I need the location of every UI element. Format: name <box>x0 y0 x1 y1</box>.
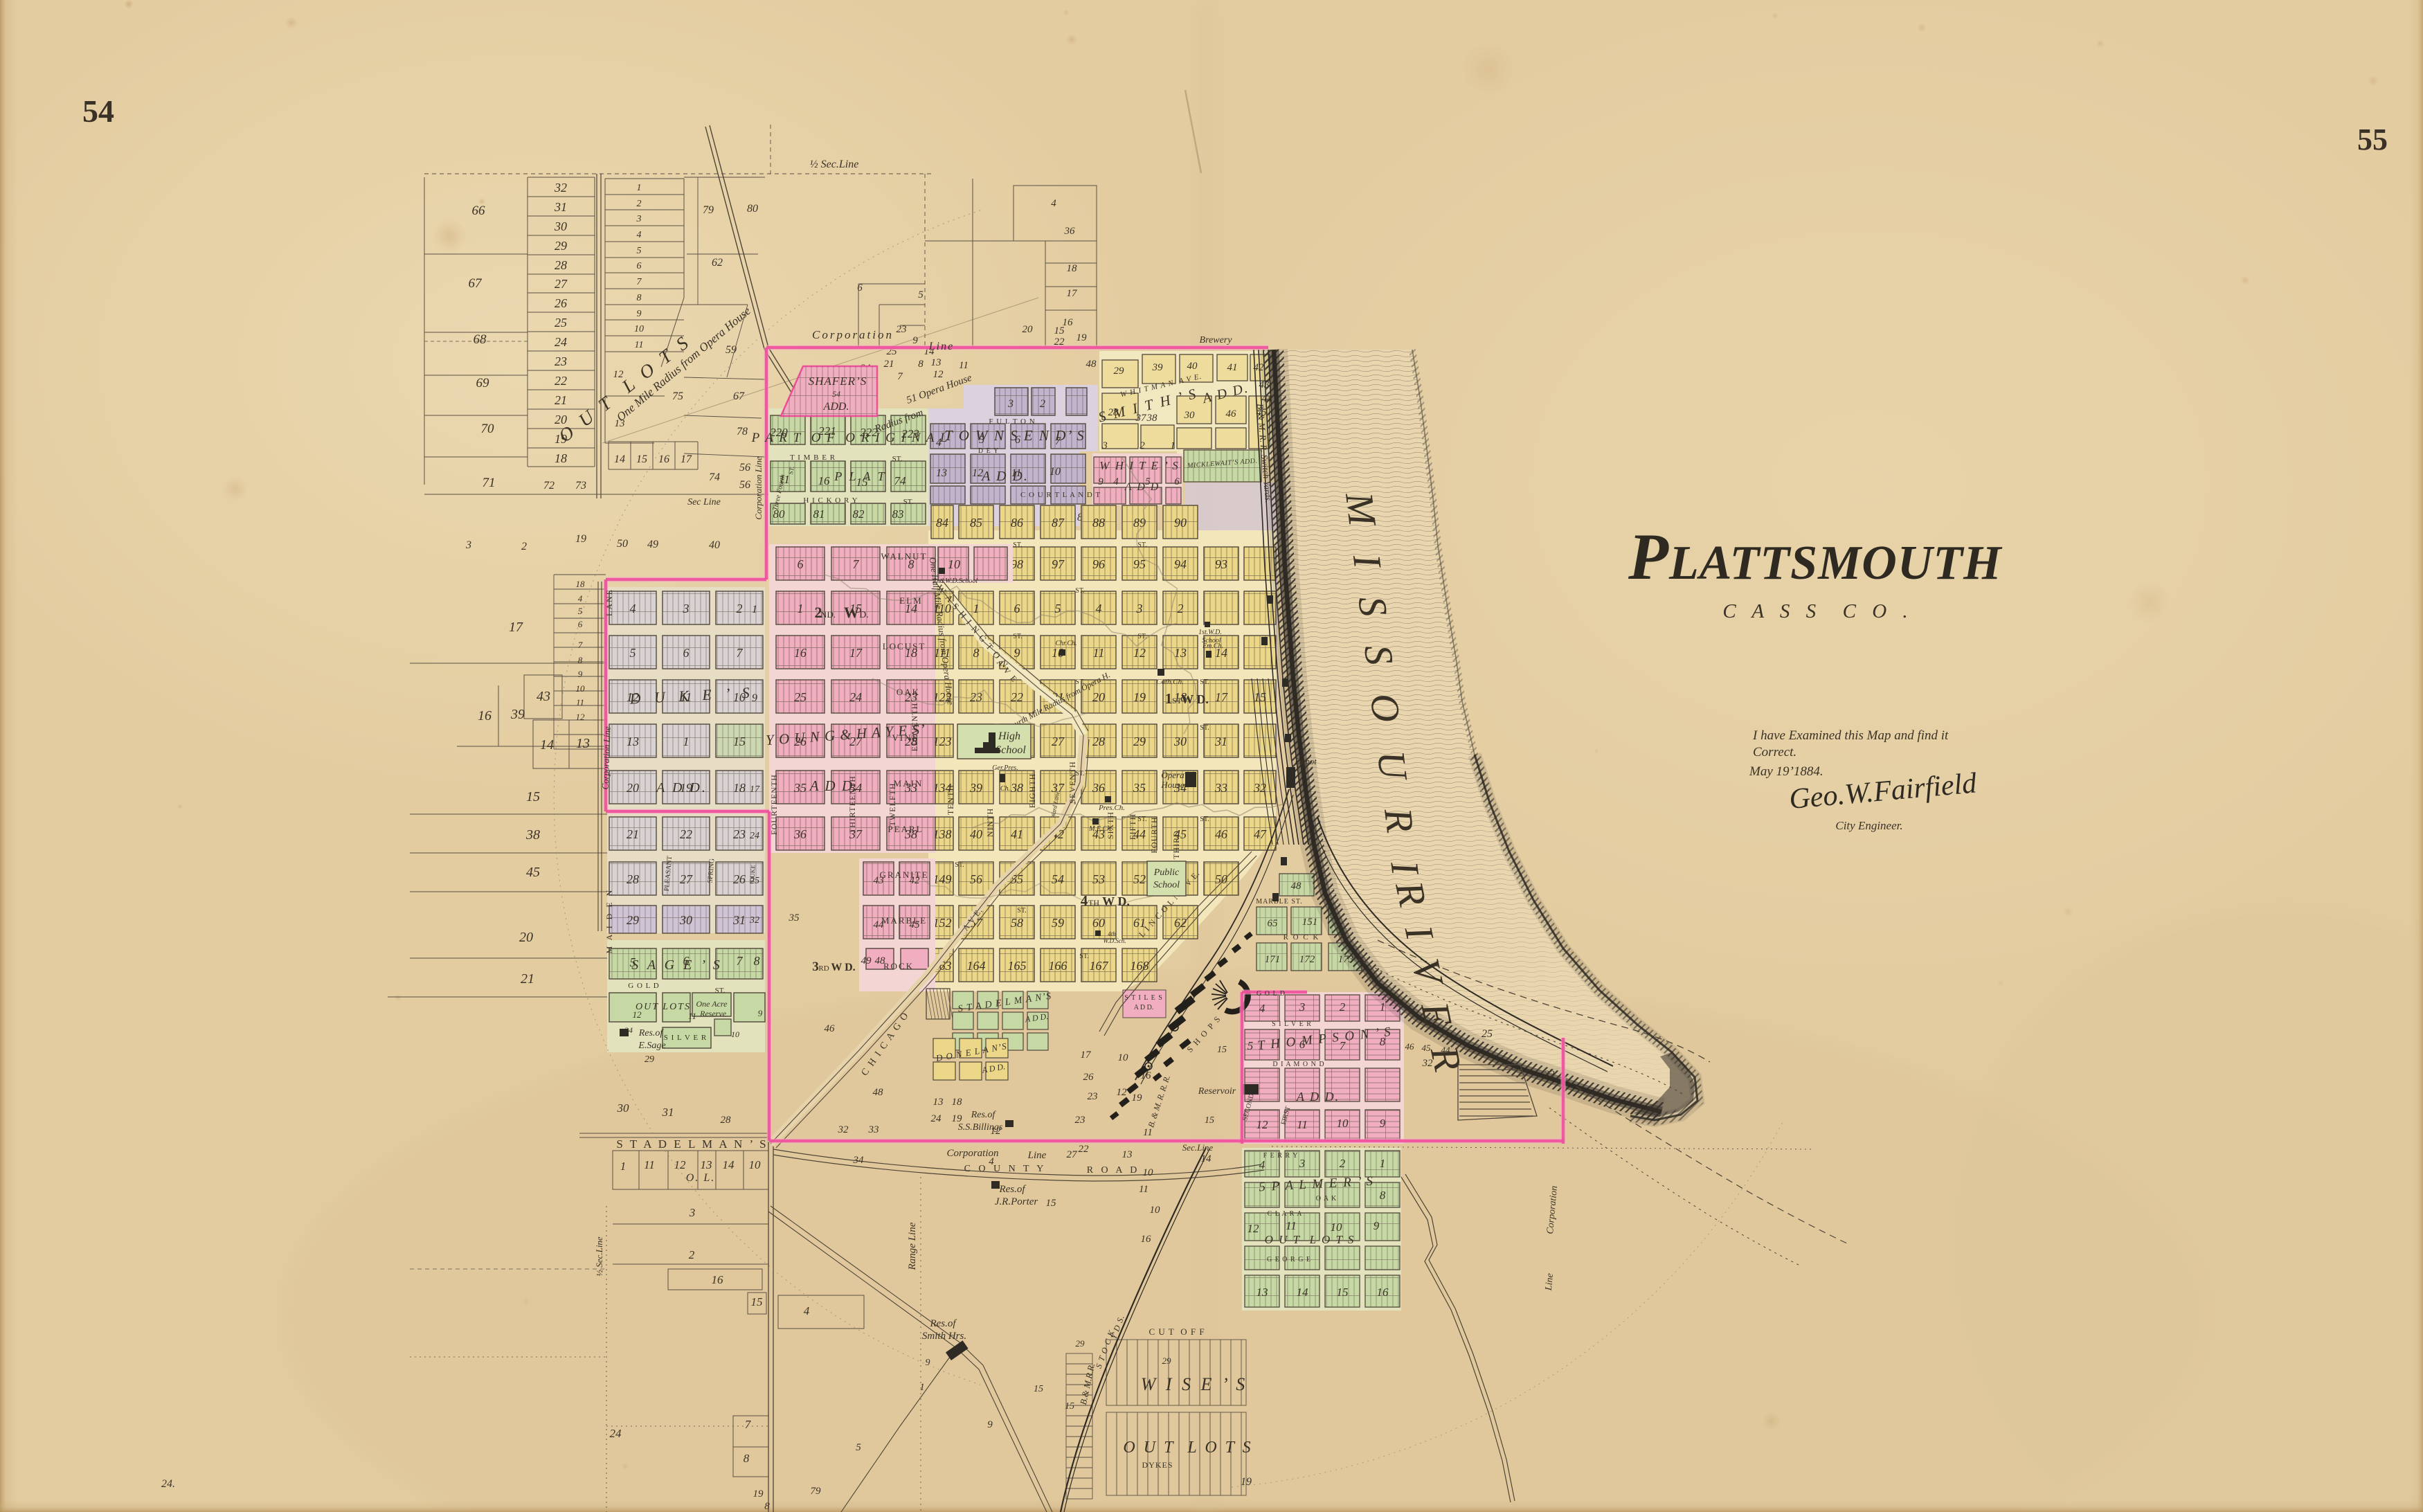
svg-text:24.: 24. <box>161 1478 175 1490</box>
svg-text:50: 50 <box>1215 872 1227 886</box>
svg-text:2: 2 <box>1040 398 1045 410</box>
svg-text:79: 79 <box>703 204 714 216</box>
svg-text:TH: TH <box>1088 898 1099 908</box>
svg-text:23: 23 <box>1088 1091 1098 1102</box>
svg-text:M.E.Ch.: M.E.Ch. <box>1088 825 1113 833</box>
svg-text:10: 10 <box>749 1158 762 1171</box>
svg-text:House: House <box>1160 780 1184 790</box>
svg-text:Line: Line <box>1027 1150 1047 1161</box>
svg-text:18: 18 <box>555 451 567 465</box>
svg-text:93: 93 <box>1215 557 1227 571</box>
svg-text:35: 35 <box>789 912 800 924</box>
svg-text:12: 12 <box>633 1009 642 1020</box>
svg-text:Res.of: Res.of <box>929 1318 957 1329</box>
svg-text:21: 21 <box>884 359 894 370</box>
svg-text:Pres.Ch.: Pres.Ch. <box>1098 804 1125 812</box>
svg-text:6: 6 <box>683 646 690 660</box>
svg-text:2: 2 <box>1178 602 1184 615</box>
svg-text:Chr.Ch.: Chr.Ch. <box>1055 640 1077 647</box>
svg-text:9: 9 <box>987 1419 993 1430</box>
svg-text:14: 14 <box>540 737 554 753</box>
svg-text:65: 65 <box>1268 918 1279 929</box>
svg-text:86: 86 <box>1011 516 1023 530</box>
svg-text:20: 20 <box>1092 690 1105 704</box>
svg-text:PEARL: PEARL <box>888 824 923 834</box>
svg-text:ST.: ST. <box>1137 633 1146 640</box>
svg-text:2nd.W.D.School: 2nd.W.D.School <box>933 577 978 585</box>
svg-text:11: 11 <box>688 1011 696 1021</box>
svg-text:6: 6 <box>857 282 863 294</box>
svg-text:Cath.Ch.: Cath.Ch. <box>1156 678 1184 686</box>
svg-text:9: 9 <box>1014 646 1020 660</box>
svg-text:15: 15 <box>1034 1384 1043 1394</box>
svg-text:10: 10 <box>948 557 960 571</box>
svg-text:49: 49 <box>647 539 658 550</box>
svg-text:13: 13 <box>1122 1149 1133 1160</box>
svg-text:1: 1 <box>1380 1157 1386 1170</box>
svg-text:5: 5 <box>856 1442 861 1453</box>
svg-text:MARBLE ST.: MARBLE ST. <box>1256 898 1303 906</box>
svg-text:172: 172 <box>1299 954 1315 965</box>
svg-text:3: 3 <box>465 539 471 551</box>
svg-text:OUT LOTS: OUT LOTS <box>636 1002 691 1012</box>
svg-text:ND.: ND. <box>820 609 836 620</box>
svg-text:Range Line: Range Line <box>907 1222 918 1270</box>
svg-text:39: 39 <box>510 707 525 722</box>
svg-text:48: 48 <box>873 1087 884 1098</box>
svg-text:39: 39 <box>969 781 982 795</box>
svg-text:29: 29 <box>555 239 567 253</box>
svg-text:41: 41 <box>1227 362 1238 373</box>
svg-text:1: 1 <box>683 735 690 748</box>
svg-text:P A R T O F O R I G I N A L: P A R T O F O R I G I N A L <box>751 431 949 445</box>
svg-text:30: 30 <box>617 1101 630 1115</box>
svg-text:City Engineer.: City Engineer. <box>1835 819 1902 832</box>
svg-text:4: 4 <box>1096 602 1102 615</box>
svg-text:R O A D: R O A D <box>1087 1165 1140 1176</box>
svg-text:19: 19 <box>575 533 586 545</box>
svg-text:24: 24 <box>750 831 759 841</box>
svg-text:3: 3 <box>683 602 690 615</box>
svg-text:15: 15 <box>1217 1045 1227 1055</box>
svg-text:14: 14 <box>614 453 625 465</box>
svg-text:1: 1 <box>1165 690 1173 707</box>
svg-text:6: 6 <box>798 557 804 571</box>
svg-text:6: 6 <box>1174 476 1180 487</box>
svg-text:11: 11 <box>1143 1127 1153 1138</box>
svg-text:F U L T O N: F U L T O N <box>989 417 1035 426</box>
svg-text:70: 70 <box>481 422 495 436</box>
svg-text:10: 10 <box>1143 1167 1154 1178</box>
svg-text:41: 41 <box>1011 827 1023 841</box>
svg-text:164: 164 <box>967 959 986 973</box>
svg-text:3: 3 <box>1299 1000 1306 1014</box>
svg-text:2: 2 <box>689 1248 695 1261</box>
svg-text:12: 12 <box>933 369 944 380</box>
svg-text:One Acre: One Acre <box>696 999 728 1009</box>
svg-text:FIFTH: FIFTH <box>1128 813 1137 840</box>
svg-text:27: 27 <box>1067 1149 1079 1160</box>
svg-text:6: 6 <box>1014 602 1020 615</box>
svg-text:29: 29 <box>1133 735 1146 748</box>
svg-text:11: 11 <box>1139 1184 1149 1195</box>
svg-text:58: 58 <box>1011 916 1023 930</box>
svg-text:13: 13 <box>1256 1286 1268 1299</box>
svg-text:T O W N S E N D’ S: T O W N S E N D’ S <box>944 427 1086 444</box>
svg-text:A D D.: A D D. <box>655 780 708 795</box>
svg-text:15: 15 <box>733 735 746 748</box>
svg-text:56: 56 <box>739 462 750 474</box>
svg-text:96: 96 <box>1092 557 1105 571</box>
svg-text:7: 7 <box>737 954 744 968</box>
svg-text:13: 13 <box>931 357 942 368</box>
svg-text:S T A D E L M A N ’ S: S T A D E L M A N ’ S <box>616 1137 768 1151</box>
svg-text:152: 152 <box>933 916 952 930</box>
svg-text:29: 29 <box>1114 366 1125 377</box>
svg-text:Res.of: Res.of <box>638 1028 665 1038</box>
svg-text:11: 11 <box>644 1158 655 1171</box>
svg-text:30: 30 <box>1184 410 1196 421</box>
svg-text:30: 30 <box>1173 735 1187 748</box>
svg-text:80: 80 <box>747 203 758 215</box>
svg-text:16: 16 <box>794 646 807 660</box>
svg-text:29: 29 <box>1076 1338 1086 1349</box>
svg-text:69: 69 <box>476 376 490 390</box>
svg-text:O U T L O T S: O U T L O T S <box>1123 1439 1252 1457</box>
svg-text:17: 17 <box>1081 1050 1092 1061</box>
svg-text:MAIN: MAIN <box>894 778 924 789</box>
svg-text:8: 8 <box>637 293 642 303</box>
svg-text:28: 28 <box>627 872 639 886</box>
svg-text:75: 75 <box>672 390 683 402</box>
svg-text:7: 7 <box>578 640 583 650</box>
svg-text:36: 36 <box>1064 226 1076 237</box>
svg-text:18: 18 <box>952 1097 963 1108</box>
svg-text:11: 11 <box>1286 1219 1297 1232</box>
svg-text:12: 12 <box>1133 646 1146 660</box>
svg-text:27: 27 <box>680 872 693 886</box>
svg-text:22: 22 <box>1011 690 1023 704</box>
svg-text:Opera: Opera <box>1161 770 1185 780</box>
svg-text:Corporation: Corporation <box>946 1148 998 1159</box>
svg-text:46: 46 <box>825 1023 836 1034</box>
svg-text:20: 20 <box>1023 324 1034 335</box>
svg-text:May 19’1884.: May 19’1884. <box>1749 764 1823 779</box>
svg-text:2: 2 <box>1340 1000 1346 1014</box>
svg-text:21: 21 <box>555 393 567 407</box>
svg-text:4: 4 <box>804 1304 810 1317</box>
svg-text:36: 36 <box>1092 781 1105 795</box>
svg-text:40: 40 <box>1187 361 1198 372</box>
svg-text:Public: Public <box>1153 867 1180 878</box>
svg-text:Reserve: Reserve <box>699 1009 727 1018</box>
svg-text:TENTH: TENTH <box>946 784 955 815</box>
svg-text:M A I D E N: M A I D E N <box>604 888 614 954</box>
svg-text:5: 5 <box>637 246 642 256</box>
svg-text:31: 31 <box>662 1106 674 1119</box>
svg-text:32: 32 <box>1544 1069 1556 1080</box>
svg-text:4: 4 <box>1113 476 1119 487</box>
svg-text:OAK: OAK <box>897 687 920 697</box>
svg-text:Res.of: Res.of <box>971 1110 997 1120</box>
svg-text:31: 31 <box>732 913 746 927</box>
svg-text:16: 16 <box>478 708 492 723</box>
svg-text:24: 24 <box>849 690 862 704</box>
svg-text:6: 6 <box>578 619 583 629</box>
svg-text:29: 29 <box>645 1054 654 1065</box>
svg-text:ST.: ST. <box>892 455 903 463</box>
svg-text:62: 62 <box>1174 916 1187 930</box>
svg-text:35: 35 <box>793 781 807 795</box>
svg-text:C O U N T Y: C O U N T Y <box>964 1164 1047 1174</box>
svg-text:87: 87 <box>1052 516 1065 530</box>
svg-text:I have Examined this Map and f: I have Examined this Map and find it <box>1752 728 1949 743</box>
svg-text:ST.: ST. <box>1075 770 1084 777</box>
svg-text:O. L.: O. L. <box>686 1172 715 1184</box>
svg-text:ST.: ST. <box>1137 541 1146 549</box>
svg-text:46: 46 <box>1405 1041 1415 1052</box>
svg-text:ST.: ST. <box>1200 724 1209 732</box>
svg-text:88: 88 <box>1092 516 1105 530</box>
svg-text:19: 19 <box>1241 1476 1252 1488</box>
svg-text:24: 24 <box>555 335 567 349</box>
svg-text:48: 48 <box>1291 881 1302 892</box>
svg-text:A D D.: A D D. <box>1296 1090 1340 1104</box>
svg-text:24: 24 <box>610 1427 622 1440</box>
svg-text:LOCUST: LOCUST <box>883 641 926 651</box>
svg-text:DYKES: DYKES <box>1142 1460 1173 1470</box>
svg-text:Sec Line: Sec Line <box>687 497 721 507</box>
svg-text:21: 21 <box>627 827 639 841</box>
svg-text:Smith Hrs.: Smith Hrs. <box>922 1331 966 1342</box>
svg-text:54: 54 <box>832 389 840 399</box>
svg-text:59: 59 <box>1052 916 1064 930</box>
svg-text:2: 2 <box>637 199 642 209</box>
svg-text:43: 43 <box>537 689 550 704</box>
svg-text:38: 38 <box>525 827 540 843</box>
svg-text:4: 4 <box>1259 1002 1265 1015</box>
svg-text:40: 40 <box>709 539 720 551</box>
svg-text:26: 26 <box>1083 1072 1095 1083</box>
svg-text:15: 15 <box>1054 325 1065 336</box>
svg-text:5: 5 <box>1247 1039 1254 1052</box>
svg-text:P L A T: P L A T <box>834 469 886 483</box>
svg-text:56: 56 <box>739 479 750 491</box>
svg-text:38: 38 <box>1010 781 1023 795</box>
svg-text:5: 5 <box>578 606 583 616</box>
svg-text:ST.: ST. <box>903 498 914 506</box>
svg-text:7: 7 <box>853 557 860 571</box>
svg-text:17: 17 <box>509 620 523 635</box>
svg-text:VINE: VINE <box>892 732 919 743</box>
svg-text:C O U R T L A N D T: C O U R T L A N D T <box>1020 491 1101 499</box>
svg-text:9: 9 <box>912 335 918 346</box>
svg-text:Line: Line <box>1544 1273 1556 1292</box>
svg-text:3: 3 <box>1299 1157 1306 1170</box>
svg-text:17: 17 <box>1215 690 1228 704</box>
svg-text:73: 73 <box>575 480 586 492</box>
svg-text:74: 74 <box>894 474 907 487</box>
svg-text:8: 8 <box>973 646 980 660</box>
svg-text:10: 10 <box>731 1029 739 1039</box>
svg-text:50: 50 <box>617 538 628 550</box>
svg-text:9: 9 <box>926 1358 930 1368</box>
svg-text:W: W <box>844 604 859 621</box>
svg-text:G E O R G E: G E O R G E <box>1267 1256 1311 1263</box>
svg-text:R O C K: R O C K <box>1283 933 1320 942</box>
svg-text:Brewery: Brewery <box>1200 335 1233 345</box>
svg-text:Ch.: Ch. <box>1000 785 1010 793</box>
svg-text:16: 16 <box>1377 1286 1389 1299</box>
svg-text:67: 67 <box>469 276 483 291</box>
svg-text:ST.: ST. <box>1200 678 1209 686</box>
svg-text:ST.: ST. <box>715 987 726 995</box>
svg-text:47: 47 <box>1254 827 1267 841</box>
svg-text:53: 53 <box>1092 872 1105 886</box>
svg-text:ST.: ST. <box>1137 816 1146 823</box>
svg-text:4: 4 <box>578 593 583 604</box>
svg-text:Reservoir: Reservoir <box>1198 1086 1236 1097</box>
svg-text:ST.: ST. <box>1075 678 1084 686</box>
svg-text:A D D: A D D <box>1124 481 1160 493</box>
svg-text:MARBLE: MARBLE <box>881 915 927 926</box>
svg-text:15: 15 <box>636 453 647 465</box>
svg-text:16: 16 <box>1141 1234 1152 1245</box>
svg-text:54: 54 <box>82 93 114 129</box>
svg-text:24: 24 <box>931 1113 942 1124</box>
svg-text:19: 19 <box>1133 690 1146 704</box>
svg-text:ADD.: ADD. <box>823 401 849 413</box>
svg-text:8: 8 <box>578 655 583 665</box>
svg-text:D I A M O N D: D I A M O N D <box>1272 1061 1324 1068</box>
svg-text:10: 10 <box>1050 466 1061 478</box>
svg-text:10: 10 <box>1150 1205 1161 1216</box>
svg-text:78: 78 <box>737 426 748 438</box>
svg-text:Corporation: Corporation <box>812 328 894 341</box>
svg-text:72: 72 <box>543 480 555 492</box>
svg-text:A D D.: A D D. <box>1134 1004 1154 1011</box>
svg-text:17: 17 <box>1067 288 1079 299</box>
svg-text:28: 28 <box>555 258 567 272</box>
svg-text:12: 12 <box>1256 1118 1269 1131</box>
svg-text:17: 17 <box>750 784 760 795</box>
svg-text:J.R.Porter: J.R.Porter <box>995 1196 1038 1207</box>
svg-text:WALNUT: WALNUT <box>881 551 928 561</box>
svg-text:71: 71 <box>483 476 496 490</box>
svg-text:Line: Line <box>928 341 954 352</box>
svg-text:ELEVENTH: ELEVENTH <box>910 703 919 752</box>
svg-text:9: 9 <box>578 669 583 679</box>
svg-text:C A S S C O .: C A S S C O . <box>1722 600 1913 622</box>
svg-text:49: 49 <box>861 955 872 966</box>
svg-text:S I L V E R: S I L V E R <box>1272 1020 1312 1028</box>
svg-text:4: 4 <box>1081 892 1088 909</box>
svg-text:24: 24 <box>624 1025 633 1035</box>
svg-text:ST.: ST. <box>1017 907 1026 915</box>
svg-text:31: 31 <box>1214 735 1227 748</box>
svg-text:ROCK: ROCK <box>883 961 914 971</box>
svg-text:52: 52 <box>1133 872 1146 886</box>
svg-text:GRANITE: GRANITE <box>879 870 928 880</box>
svg-text:32: 32 <box>749 915 759 926</box>
svg-text:12: 12 <box>991 1126 1002 1137</box>
svg-text:8: 8 <box>754 954 760 968</box>
svg-text:School: School <box>996 744 1026 756</box>
svg-text:16: 16 <box>658 453 669 465</box>
svg-text:54: 54 <box>1052 872 1064 886</box>
svg-text:16: 16 <box>818 474 831 487</box>
svg-text:C U T O F F: C U T O F F <box>1149 1326 1205 1337</box>
svg-text:11: 11 <box>576 697 584 708</box>
svg-text:Correct.: Correct. <box>1753 745 1796 759</box>
svg-text:1: 1 <box>798 602 804 615</box>
svg-text:29: 29 <box>1162 1356 1172 1366</box>
svg-text:ST.: ST. <box>1075 587 1084 595</box>
svg-text:1: 1 <box>919 1382 925 1393</box>
svg-text:2: 2 <box>1140 440 1145 451</box>
svg-text:6: 6 <box>637 261 642 271</box>
svg-text:23: 23 <box>897 324 907 335</box>
svg-text:26: 26 <box>733 872 746 886</box>
svg-text:EIGHTH: EIGHTH <box>1027 773 1037 809</box>
svg-text:20: 20 <box>627 781 639 795</box>
svg-text:85: 85 <box>970 516 982 530</box>
svg-text:23: 23 <box>1075 1115 1086 1126</box>
svg-text:T I M B E R: T I M B E R <box>790 453 836 462</box>
svg-text:22: 22 <box>680 827 692 841</box>
svg-text:33: 33 <box>868 1124 879 1135</box>
svg-text:11: 11 <box>959 360 969 371</box>
svg-text:3: 3 <box>689 1206 696 1219</box>
svg-text:8: 8 <box>1380 1189 1386 1202</box>
svg-text:11: 11 <box>1093 646 1105 660</box>
svg-text:D E Y: D E Y <box>978 447 999 455</box>
svg-text:32: 32 <box>554 181 567 195</box>
svg-text:15: 15 <box>526 789 540 804</box>
svg-text:11: 11 <box>635 340 644 350</box>
svg-text:13: 13 <box>627 735 639 748</box>
svg-text:46: 46 <box>1226 408 1237 420</box>
svg-text:18: 18 <box>576 579 586 589</box>
svg-text:82: 82 <box>853 507 865 521</box>
svg-text:34: 34 <box>853 1155 865 1166</box>
svg-text:FOURTEENTH: FOURTEENTH <box>769 774 779 835</box>
svg-text:1: 1 <box>973 602 980 615</box>
svg-text:84: 84 <box>936 516 948 530</box>
svg-text:F E R R Y: F E R R Y <box>1263 1152 1299 1160</box>
svg-text:79: 79 <box>811 1486 822 1497</box>
svg-text:FOURTH: FOURTH <box>1149 816 1159 853</box>
svg-text:66: 66 <box>472 204 486 218</box>
svg-text:19: 19 <box>952 1113 963 1124</box>
svg-text:12: 12 <box>576 712 586 722</box>
svg-text:25: 25 <box>1481 1028 1493 1040</box>
svg-text:3: 3 <box>1136 602 1143 615</box>
svg-text:27: 27 <box>1052 735 1065 748</box>
svg-text:15: 15 <box>1205 1115 1214 1126</box>
svg-text:C L A R A: C L A R A <box>1268 1210 1303 1218</box>
svg-text:Depot: Depot <box>1294 756 1317 766</box>
svg-text:School: School <box>1202 637 1220 645</box>
svg-text:39: 39 <box>1152 362 1164 373</box>
svg-text:46: 46 <box>1215 827 1227 841</box>
svg-text:4th: 4th <box>1108 930 1116 937</box>
svg-text:83: 83 <box>892 507 904 521</box>
svg-text:TWELFTH: TWELFTH <box>888 783 897 827</box>
svg-text:10: 10 <box>1118 1052 1129 1063</box>
svg-text:1: 1 <box>637 183 642 193</box>
svg-text:10: 10 <box>1331 1221 1343 1234</box>
